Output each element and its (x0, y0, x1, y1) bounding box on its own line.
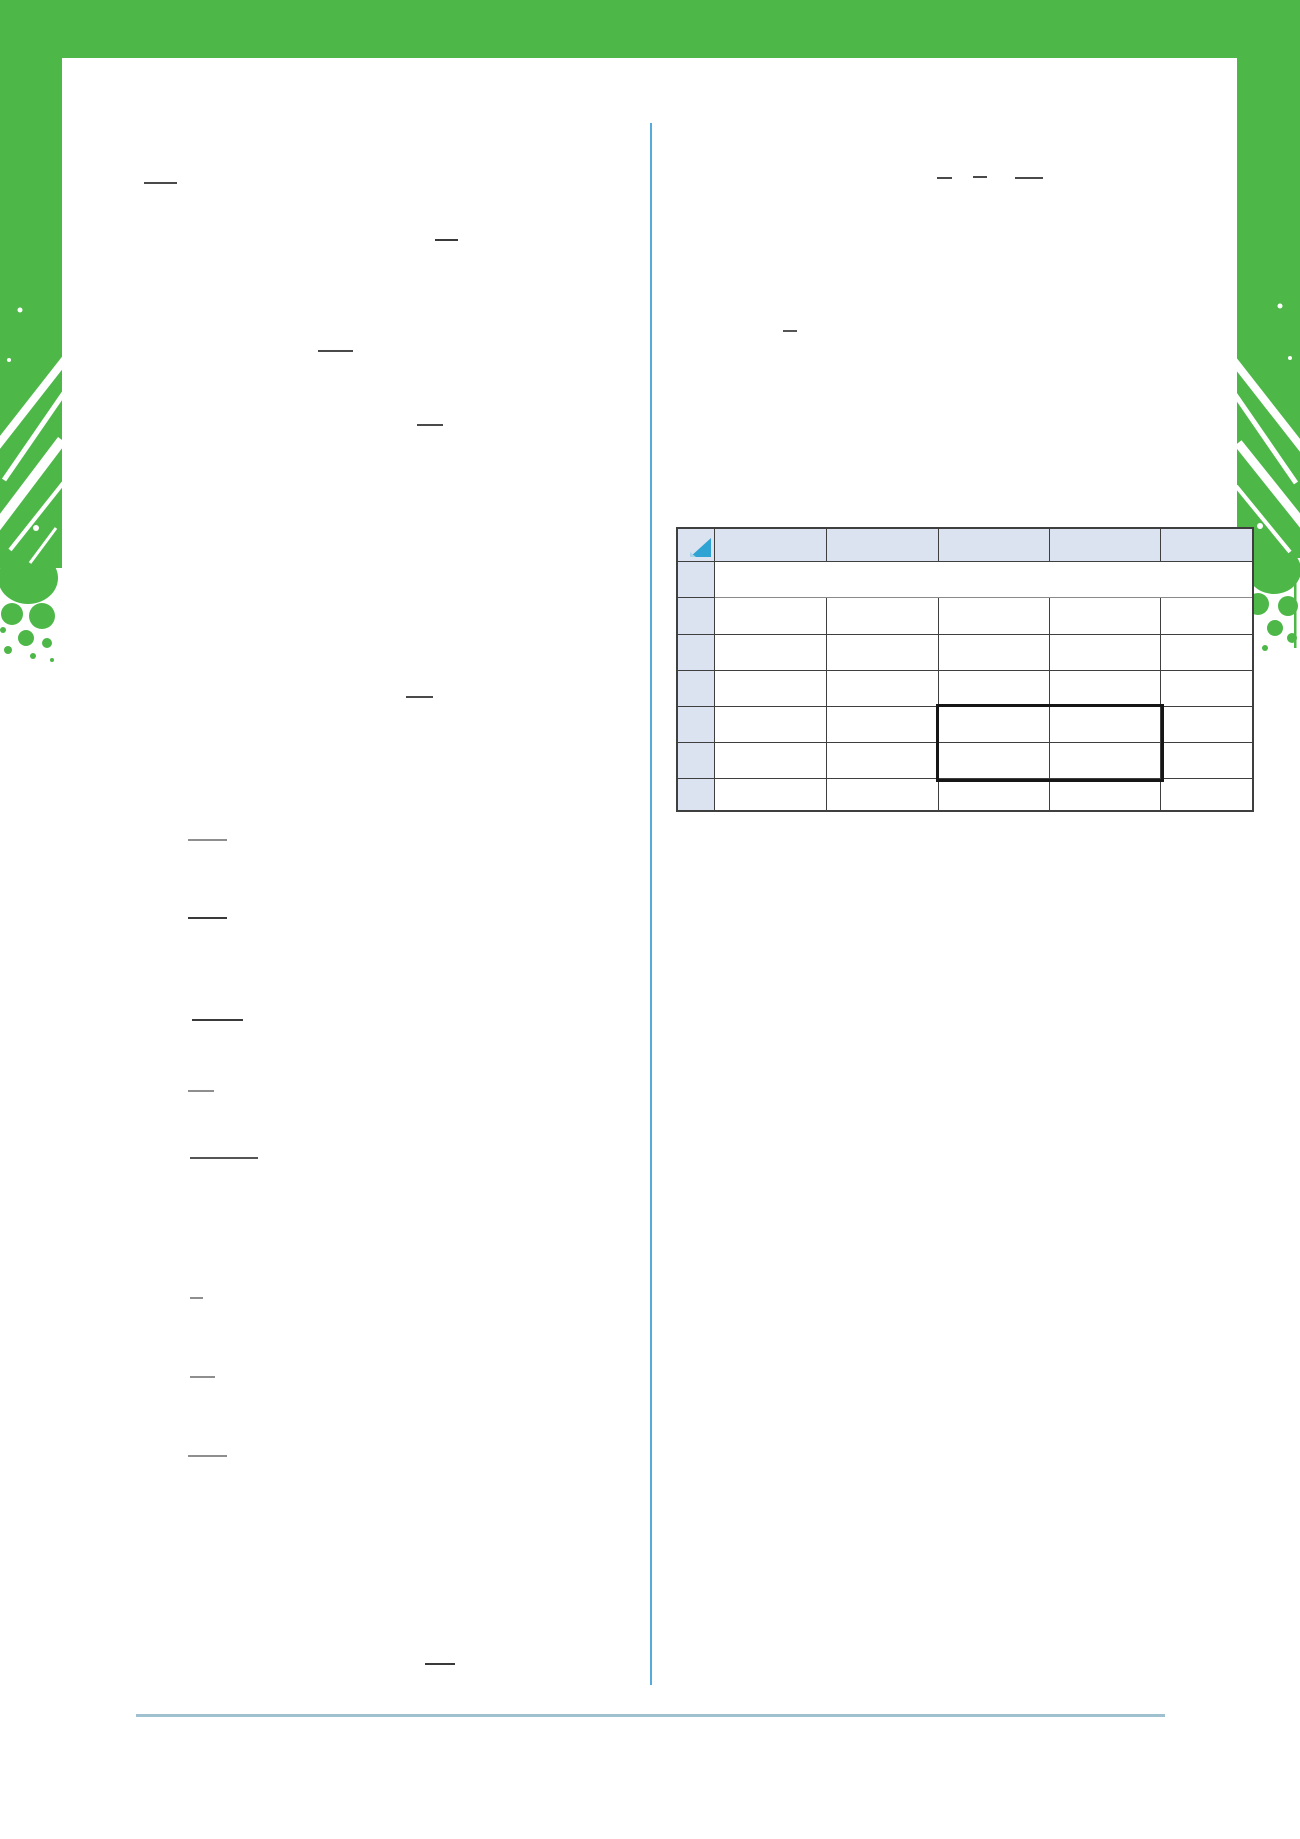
table-cell (1049, 778, 1160, 811)
table-cell (1049, 634, 1160, 670)
table-cell (714, 778, 826, 811)
table-header-cell (1049, 528, 1160, 561)
table-cell (714, 670, 826, 706)
sort-triangle-icon (690, 538, 711, 557)
table-cell (938, 706, 1049, 742)
row-header-cell (677, 778, 714, 811)
table-cell (714, 706, 826, 742)
table-row (677, 706, 1253, 742)
table-cell (1160, 742, 1253, 778)
table-row (677, 742, 1253, 778)
table-grid (676, 527, 1254, 812)
row-header-cell (677, 634, 714, 670)
fraction-bar (190, 1376, 215, 1378)
fraction-bar (435, 239, 458, 241)
table-row (677, 778, 1253, 811)
table-header-cell (938, 528, 1049, 561)
fraction-bar (1015, 177, 1043, 179)
table-cell (1049, 742, 1160, 778)
table-cell (1049, 670, 1160, 706)
table-cell (1160, 597, 1253, 634)
table-cell (938, 742, 1049, 778)
fraction-bar (973, 176, 987, 178)
fraction-bar (188, 1090, 214, 1092)
fraction-bar (406, 696, 433, 698)
table-cell (1160, 670, 1253, 706)
table-header-cell (1160, 528, 1253, 561)
table-cell (714, 634, 826, 670)
table-cell (938, 597, 1049, 634)
table-cell (826, 778, 938, 811)
fraction-bar (190, 1157, 258, 1159)
table-cell (826, 634, 938, 670)
table-cell (826, 597, 938, 634)
fraction-bar (417, 424, 443, 426)
table-cell (1160, 634, 1253, 670)
fraction-bar (190, 1297, 203, 1299)
table-cell (826, 742, 938, 778)
merged-row-cell (714, 561, 1253, 597)
table-row (677, 634, 1253, 670)
row-header-cell (677, 706, 714, 742)
table-cell (938, 778, 1049, 811)
row-header-cell (677, 670, 714, 706)
table-header-row (677, 528, 1253, 561)
fraction-bar (188, 917, 227, 919)
fraction-bar (144, 182, 177, 184)
table-cell (1049, 597, 1160, 634)
row-header-cell (677, 561, 714, 597)
table-header-cell (714, 528, 826, 561)
table-row (677, 561, 1253, 597)
fraction-bar (937, 177, 952, 179)
fraction-bar (318, 350, 353, 352)
fraction-bar (783, 330, 797, 332)
fraction-bar (188, 1455, 227, 1457)
fraction-bar (192, 1019, 243, 1021)
fraction-bar (425, 1663, 455, 1665)
table-cell (714, 742, 826, 778)
footer-rule (136, 1714, 1165, 1717)
table-row (677, 670, 1253, 706)
page-border-top (0, 0, 1300, 58)
table-cell (1160, 706, 1253, 742)
table-row (677, 597, 1253, 634)
document-page (0, 0, 1300, 1839)
table-cell (714, 597, 826, 634)
row-header-cell (677, 742, 714, 778)
data-table (676, 527, 1254, 812)
column-divider-rule (650, 123, 652, 1685)
fraction-bar (188, 839, 227, 841)
table-cell (1160, 778, 1253, 811)
table-cell (826, 706, 938, 742)
table-header-cell (826, 528, 938, 561)
row-header-cell (677, 597, 714, 634)
table-cell (1049, 706, 1160, 742)
page-border-left (0, 58, 70, 670)
table-corner-cell (677, 528, 714, 561)
table-cell (938, 670, 1049, 706)
table-cell (826, 670, 938, 706)
table-cell (938, 634, 1049, 670)
